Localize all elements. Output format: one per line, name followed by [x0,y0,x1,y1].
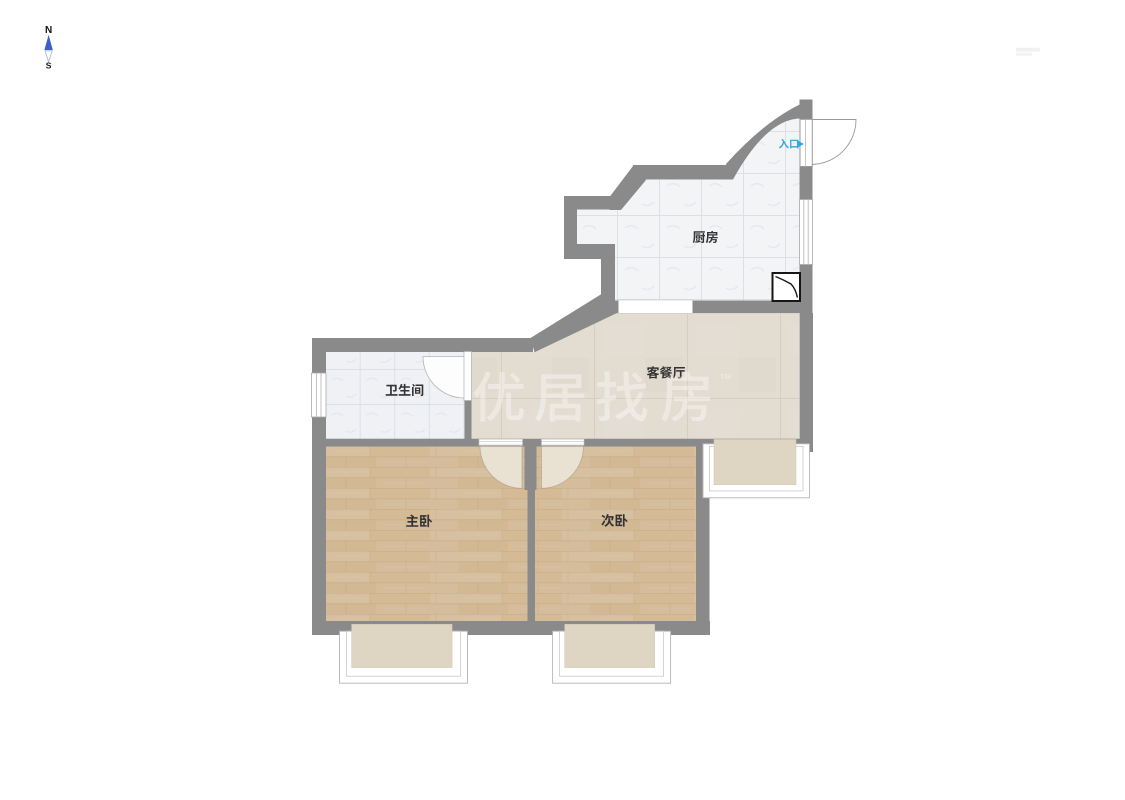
svg-text:™: ™ [719,371,732,386]
svg-text:S: S [46,60,52,70]
svg-text:N: N [45,25,52,36]
